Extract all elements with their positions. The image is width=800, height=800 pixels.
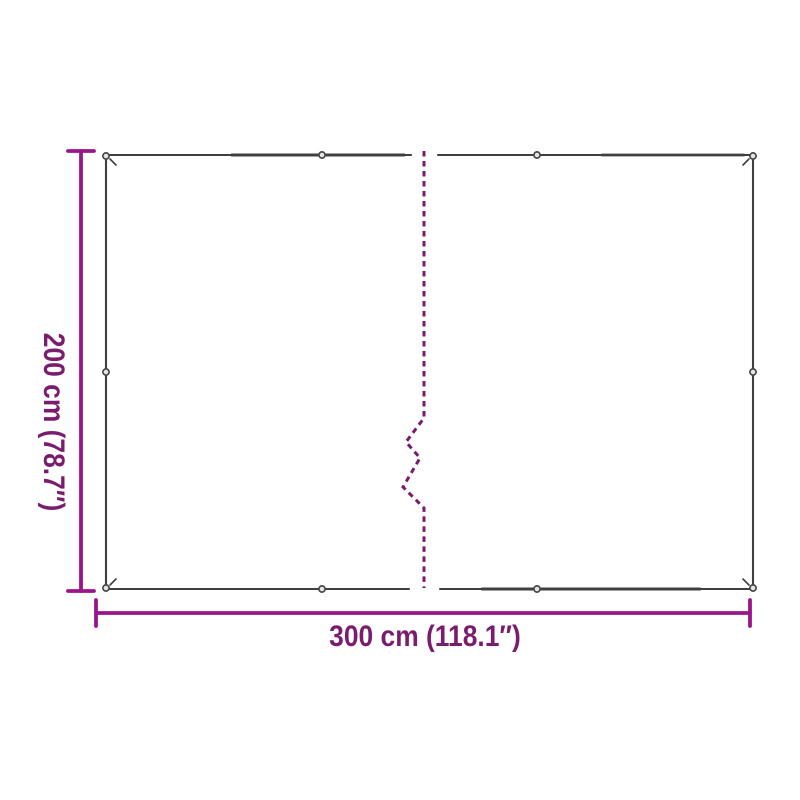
corner-tick	[743, 579, 749, 585]
fold-line	[403, 151, 424, 588]
eyelet-icon	[750, 153, 756, 159]
corner-tick	[110, 159, 116, 165]
eyelet-icon	[319, 586, 325, 592]
corner-tick	[743, 159, 749, 165]
eyelet-icon	[750, 585, 756, 591]
corner-tick	[110, 579, 116, 585]
height-dimension-label: 200 cm (78.7″)	[36, 333, 70, 511]
height-dimension-line	[68, 151, 94, 591]
tarp-diagram	[0, 0, 800, 800]
width-dimension-label: 300 cm (118.1″)	[329, 620, 521, 654]
tarp-outline	[106, 155, 753, 589]
product-dimension-image: 200 cm (78.7″) 300 cm (118.1″)	[0, 0, 800, 800]
eyelet-icon	[750, 369, 756, 375]
eyelet-icon	[534, 152, 540, 158]
eyelet-icon	[103, 585, 109, 591]
eyelet-icon	[103, 153, 109, 159]
eyelets	[103, 152, 756, 592]
eyelet-icon	[534, 586, 540, 592]
eyelet-icon	[103, 369, 109, 375]
eyelet-icon	[319, 152, 325, 158]
